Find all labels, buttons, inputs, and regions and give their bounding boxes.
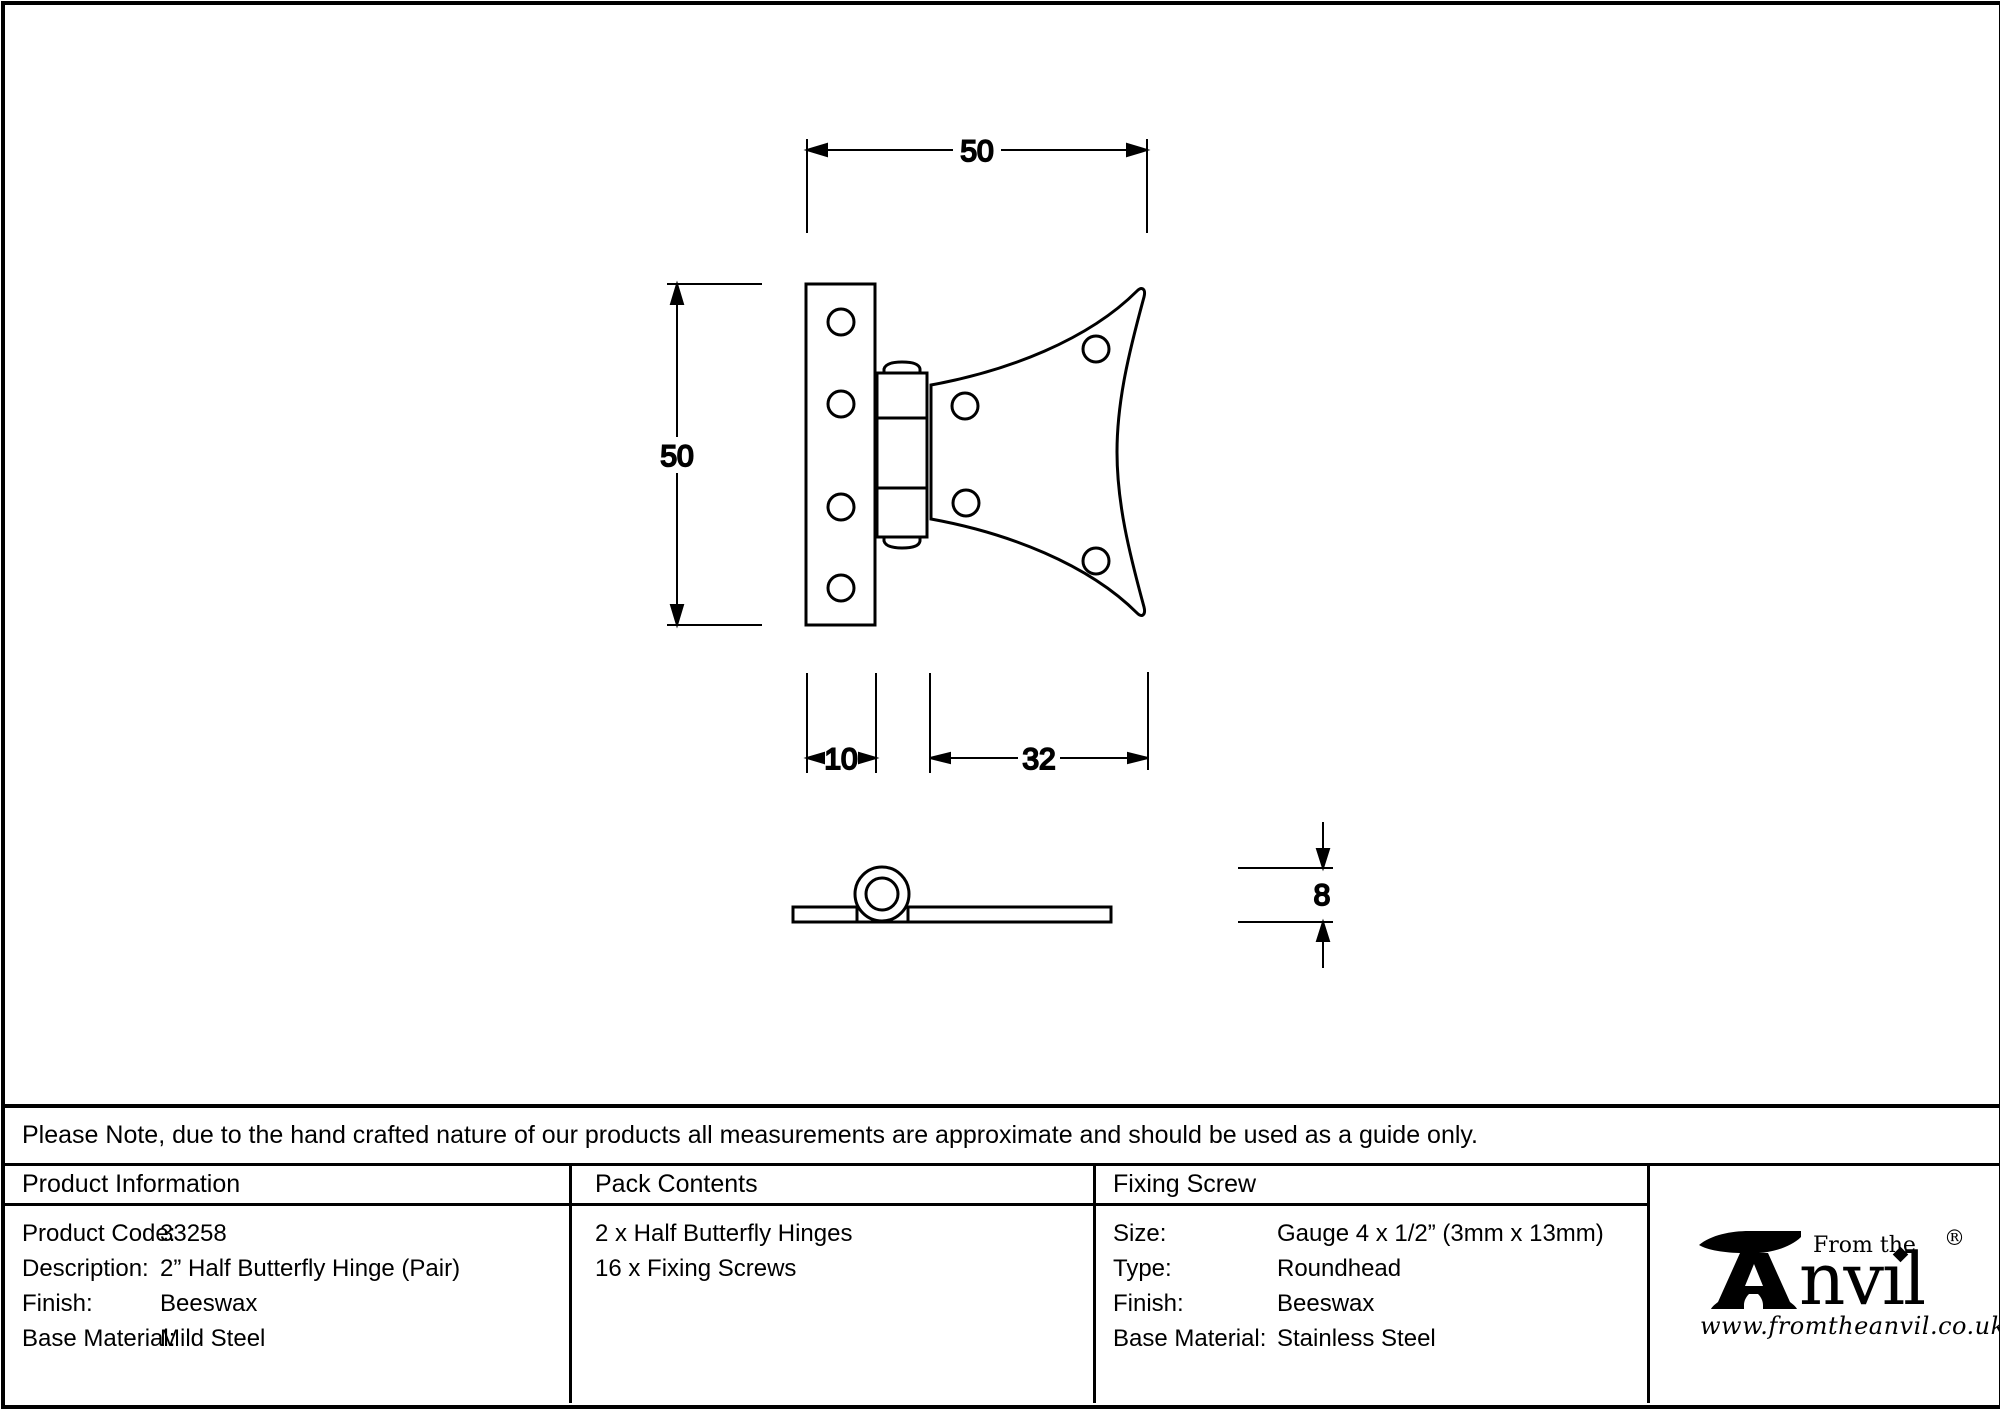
row-value: Beeswax xyxy=(160,1286,257,1321)
row-label: Base Material: xyxy=(1113,1321,1266,1356)
row-value: Stainless Steel xyxy=(1277,1321,1436,1356)
plate-screw-hole xyxy=(828,494,854,520)
table-column-divider xyxy=(1647,1163,1650,1403)
plate-screw-hole xyxy=(828,575,854,601)
logo-website-url: www.fromtheanvil.co.uk xyxy=(1700,1312,1952,1340)
pack-contents-item: 16 x Fixing Screws xyxy=(595,1251,796,1286)
table-column-divider xyxy=(569,1163,572,1403)
wing-outline xyxy=(931,289,1145,616)
table-header-divider xyxy=(1,1203,1649,1206)
dimension-plate-width: 10 xyxy=(807,673,876,776)
plate-screw-hole xyxy=(828,309,854,335)
row-value: Beeswax xyxy=(1277,1286,1374,1321)
dimension-label-wing-width: 32 xyxy=(1022,743,1055,776)
pack-contents-header: Pack Contents xyxy=(595,1163,758,1203)
row-label: Finish: xyxy=(1113,1286,1184,1321)
product-information-header: Product Information xyxy=(22,1163,240,1203)
dimension-label-thickness: 8 xyxy=(1314,879,1331,912)
wing-screw-hole xyxy=(1083,548,1109,574)
row-label: Size: xyxy=(1113,1216,1166,1251)
wing-screw-hole xyxy=(1083,336,1109,362)
knuckle-segment xyxy=(877,488,927,537)
dimension-wing-width: 32 xyxy=(930,672,1148,776)
hinge-front-view xyxy=(806,284,1145,625)
hinge-side-view xyxy=(793,867,1111,922)
row-label: Base Material: xyxy=(22,1321,175,1356)
dimension-label-plate-width: 10 xyxy=(824,743,857,776)
row-value: 2” Half Butterfly Hinge (Pair) xyxy=(160,1251,460,1286)
side-leaf-bar xyxy=(793,907,1111,922)
row-label: Description: xyxy=(22,1251,149,1286)
row-value: Gauge 4 x 1/2” (3mm x 13mm) xyxy=(1277,1216,1604,1251)
row-label: Finish: xyxy=(22,1286,93,1321)
knuckle-segment xyxy=(877,418,927,488)
row-value: Roundhead xyxy=(1277,1251,1401,1286)
plate-screw-hole xyxy=(828,391,854,417)
row-value: 33258 xyxy=(160,1216,227,1251)
knuckle-segment xyxy=(877,373,927,418)
registered-trademark-symbol: ® xyxy=(1944,1226,1965,1250)
table-top-border xyxy=(1,1163,1999,1166)
wing-screw-hole xyxy=(953,490,979,516)
fixing-screw-header: Fixing Screw xyxy=(1113,1163,1256,1203)
dimension-height: 50 xyxy=(660,284,762,625)
technical-drawing: 50 50 10 32 8 xyxy=(0,0,2000,1104)
dimension-thickness: 8 xyxy=(1238,822,1333,968)
table-column-divider xyxy=(1093,1163,1096,1403)
side-knuckle-ring-inner xyxy=(866,878,898,910)
row-label: Type: xyxy=(1113,1251,1172,1286)
row-value: Mild Steel xyxy=(160,1321,265,1356)
pack-contents-item: 2 x Half Butterfly Hinges xyxy=(595,1216,852,1251)
wing-screw-hole xyxy=(952,393,978,419)
dimension-label-height: 50 xyxy=(660,440,693,473)
dimension-label-overall-width: 50 xyxy=(960,135,993,168)
dimension-overall-width: 50 xyxy=(807,135,1147,233)
anvil-icon xyxy=(1697,1228,1803,1310)
row-label: Product Code: xyxy=(22,1216,175,1251)
note-text: Please Note, due to the hand crafted nat… xyxy=(22,1104,1478,1163)
spec-sheet-page: { "note": "Please Note, due to the hand … xyxy=(0,0,2000,1406)
